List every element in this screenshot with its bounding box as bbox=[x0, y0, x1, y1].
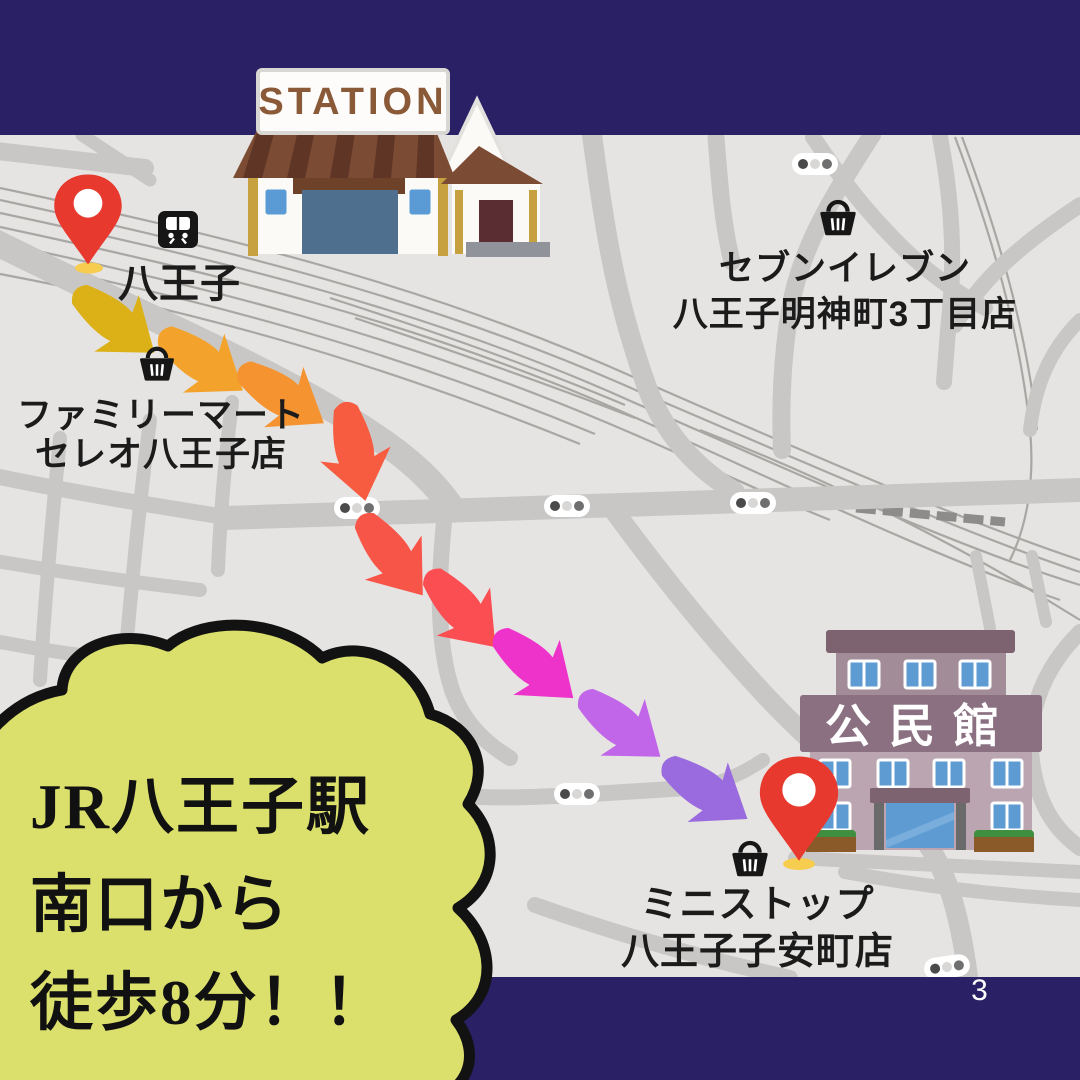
familymart-label-line1: ファミリーマート bbox=[0, 396, 322, 435]
seven-eleven-label-line2: 八王子明神町3丁目店 bbox=[655, 292, 1035, 338]
walk-time-callout-text: JR八王子駅 南口から 徒歩8分！！ bbox=[30, 758, 450, 1052]
seven-eleven-label-line1: セブンイレブン bbox=[655, 246, 1035, 292]
community-center-sign-text: 公民館 bbox=[825, 700, 1017, 752]
map-poster: STATION 公民館 bbox=[0, 0, 1080, 1080]
top-banner bbox=[0, 0, 1080, 135]
ministop-label: ミニストップ 八王子子安町店 bbox=[565, 882, 950, 976]
familymart-label: ファミリーマート セレオ八王子店 bbox=[0, 396, 322, 474]
pin-shadow bbox=[75, 263, 103, 274]
train-station-icon bbox=[158, 211, 198, 248]
ministop-label-line2: 八王子子安町店 bbox=[565, 929, 950, 976]
traffic-light-icon bbox=[730, 492, 776, 514]
traffic-light-icon bbox=[544, 495, 590, 517]
traffic-light-icon bbox=[792, 153, 838, 175]
station-sign-text: STATION bbox=[258, 81, 447, 123]
traffic-light-icon bbox=[554, 783, 600, 805]
callout-line1: JR八王子駅 bbox=[30, 758, 450, 856]
community-center-building: 公民館 bbox=[800, 630, 1042, 852]
familymart-label-line2: セレオ八王子店 bbox=[0, 435, 322, 474]
page-number: 3 bbox=[952, 974, 1008, 1008]
station-door bbox=[302, 190, 398, 254]
station-name-label: 八王子 bbox=[118, 258, 241, 310]
station-window bbox=[408, 188, 432, 216]
station-window bbox=[264, 188, 288, 216]
callout-line2: 南口から bbox=[30, 856, 450, 954]
ministop-label-line1: ミニストップ bbox=[565, 882, 950, 929]
seven-eleven-label: セブンイレブン 八王子明神町3丁目店 bbox=[655, 246, 1035, 338]
callout-line3: 徒歩8分！！ bbox=[30, 954, 450, 1052]
